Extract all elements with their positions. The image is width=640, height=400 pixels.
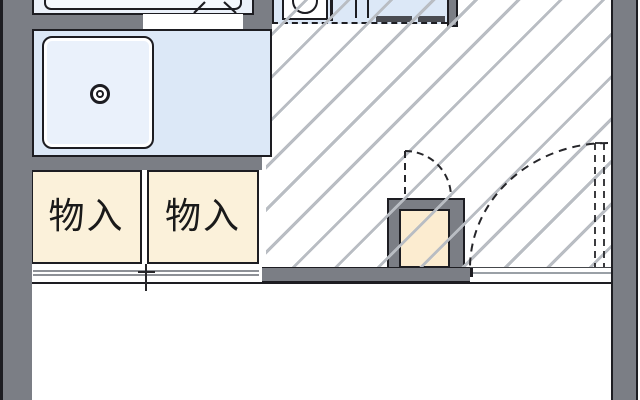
left-wall <box>0 0 32 400</box>
storage-closet-left: 物入 <box>31 170 142 264</box>
drain-inner-icon <box>96 90 104 98</box>
washing-machine-pan <box>42 36 154 149</box>
closet-sliding-track <box>33 274 259 276</box>
dining-kitchen-floor-hatch <box>266 0 611 268</box>
right-wall <box>611 0 638 400</box>
wall-segment <box>262 267 470 282</box>
wall-segment <box>262 0 272 29</box>
floor-plan: 物入 物入 <box>0 0 640 400</box>
laundry-room <box>32 29 272 157</box>
closet-label: 物入 <box>48 199 124 235</box>
lower-room <box>30 282 611 400</box>
closet-label: 物入 <box>165 199 241 235</box>
bathtub <box>44 0 242 10</box>
storage-closet-right: 物入 <box>147 170 259 264</box>
bathroom-door-opening <box>143 14 243 30</box>
bathroom <box>32 0 254 15</box>
entry-threshold <box>470 267 611 282</box>
wall-segment <box>32 157 262 170</box>
closet-sliding-track <box>33 270 259 272</box>
threshold-line <box>470 272 611 274</box>
threshold-tick <box>470 268 473 277</box>
drain-icon <box>90 84 110 104</box>
